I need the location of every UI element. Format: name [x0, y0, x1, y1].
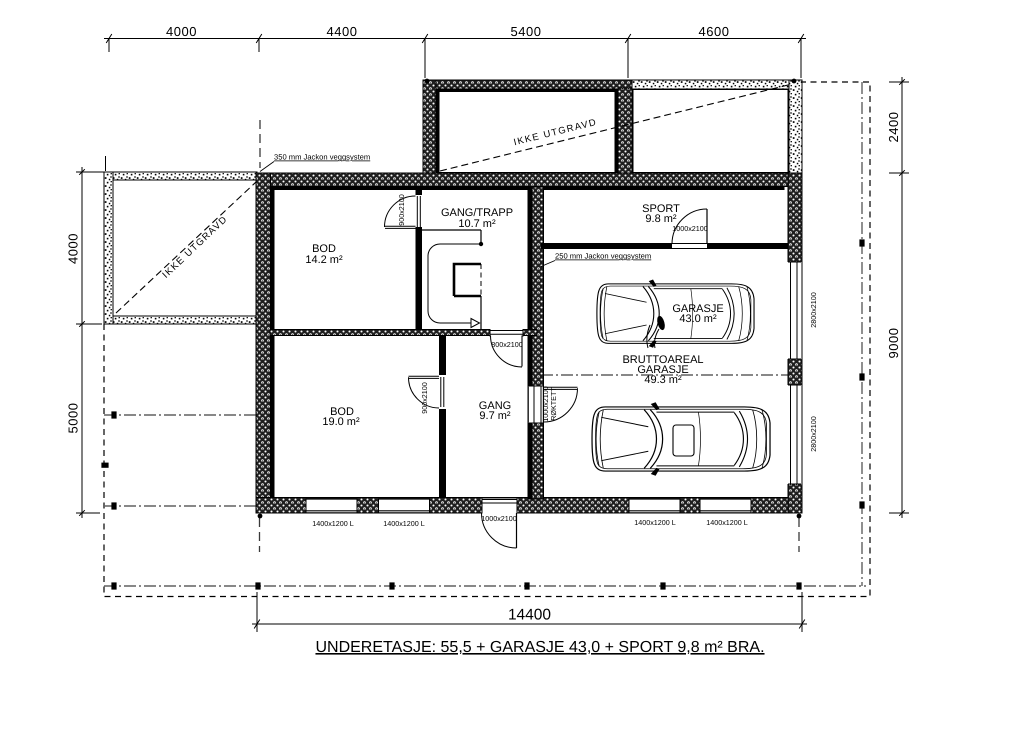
svg-text:1400x1200 L: 1400x1200 L	[706, 518, 748, 527]
svg-text:19.0 m²: 19.0 m²	[322, 416, 360, 428]
svg-text:RØKTETT: RØKTETT	[549, 387, 558, 421]
svg-text:2800x2100: 2800x2100	[809, 416, 818, 452]
svg-text:800x2100: 800x2100	[491, 340, 523, 349]
svg-text:900x2100: 900x2100	[420, 382, 429, 414]
svg-text:5000: 5000	[66, 403, 81, 434]
svg-text:900x2100: 900x2100	[397, 194, 406, 226]
svg-text:9.7 m²: 9.7 m²	[479, 410, 511, 422]
svg-text:4000: 4000	[66, 233, 81, 264]
svg-text:1400x1200 L: 1400x1200 L	[383, 519, 425, 528]
svg-text:250 mm Jackon veggsystem: 250 mm Jackon veggsystem	[555, 252, 651, 261]
svg-text:1400x1200 L: 1400x1200 L	[312, 519, 354, 528]
svg-text:350 mm Jackon veggsystem: 350 mm Jackon veggsystem	[274, 153, 370, 162]
svg-text:2800x2100: 2800x2100	[809, 292, 818, 328]
svg-text:1000x2100: 1000x2100	[481, 514, 517, 523]
svg-text:1000x2100: 1000x2100	[672, 224, 708, 233]
svg-text:49.3 m²: 49.3 m²	[644, 374, 682, 386]
svg-text:1400x1200 L: 1400x1200 L	[634, 518, 676, 527]
svg-text:4600: 4600	[699, 24, 730, 39]
svg-text:10.7 m²: 10.7 m²	[458, 218, 496, 230]
svg-text:9000: 9000	[886, 328, 901, 359]
svg-text:2400: 2400	[886, 112, 901, 143]
svg-text:14400: 14400	[508, 607, 551, 624]
svg-text:14.2 m²: 14.2 m²	[305, 254, 343, 266]
svg-text:4400: 4400	[327, 24, 358, 39]
svg-text:5400: 5400	[511, 24, 542, 39]
svg-text:4000: 4000	[166, 24, 197, 39]
svg-text:UNDERETASJE: 55,5 + GARASJE 43: UNDERETASJE: 55,5 + GARASJE 43,0 + SPORT…	[315, 639, 764, 656]
svg-text:43.0 m²: 43.0 m²	[679, 313, 717, 325]
